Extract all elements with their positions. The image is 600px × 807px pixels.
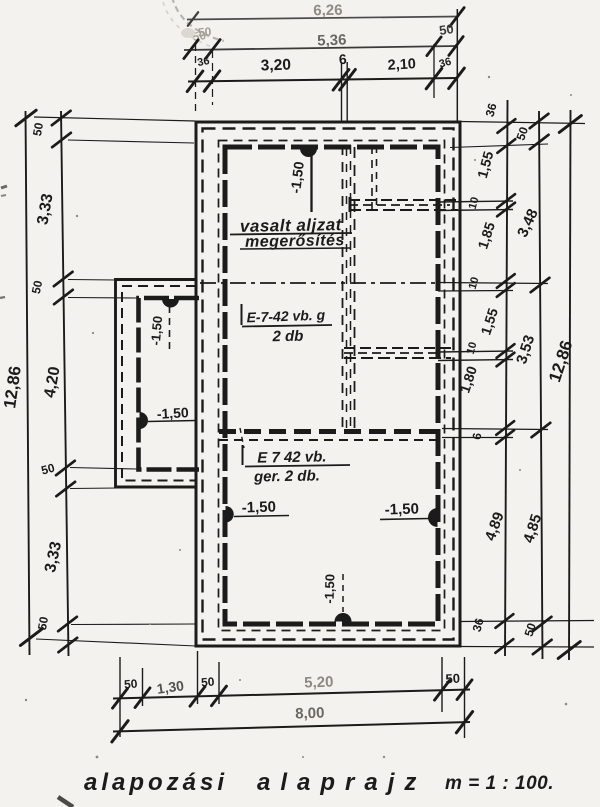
svg-text:ger. 2 db.: ger. 2 db. — [253, 467, 320, 485]
svg-text:2 db: 2 db — [271, 328, 303, 346]
svg-text:E-7-42 vb. g: E-7-42 vb. g — [246, 307, 326, 326]
svg-text:50: 50 — [30, 121, 46, 137]
svg-text:-1,50: -1,50 — [148, 315, 166, 346]
svg-text:50: 50 — [438, 21, 454, 38]
svg-text:6,26: 6,26 — [313, 2, 342, 20]
svg-text:5,20: 5,20 — [304, 673, 334, 691]
svg-text:E 7 42 vb.: E 7 42 vb. — [257, 448, 327, 466]
svg-text:50: 50 — [124, 677, 139, 692]
svg-text:2,10: 2,10 — [387, 56, 416, 73]
svg-text:-1,50: -1,50 — [156, 404, 189, 422]
svg-text:-1,50: -1,50 — [384, 500, 419, 518]
svg-text:-1,50: -1,50 — [321, 574, 337, 604]
svg-text:50: 50 — [35, 615, 51, 631]
svg-text:5,36: 5,36 — [317, 31, 347, 49]
svg-text:50: 50 — [201, 675, 216, 690]
svg-text:alaprajz: alaprajz — [257, 769, 426, 796]
svg-text:m = 1 : 100.: m = 1 : 100. — [445, 773, 554, 794]
svg-text:alapozási: alapozási — [84, 769, 228, 796]
svg-text:50: 50 — [197, 24, 212, 39]
svg-text:3,20: 3,20 — [260, 56, 291, 74]
svg-text:8,00: 8,00 — [295, 704, 325, 722]
svg-text:6: 6 — [338, 51, 347, 67]
svg-text:50: 50 — [445, 671, 460, 687]
svg-text:36: 36 — [196, 55, 210, 69]
svg-text:-1,50: -1,50 — [241, 498, 276, 516]
